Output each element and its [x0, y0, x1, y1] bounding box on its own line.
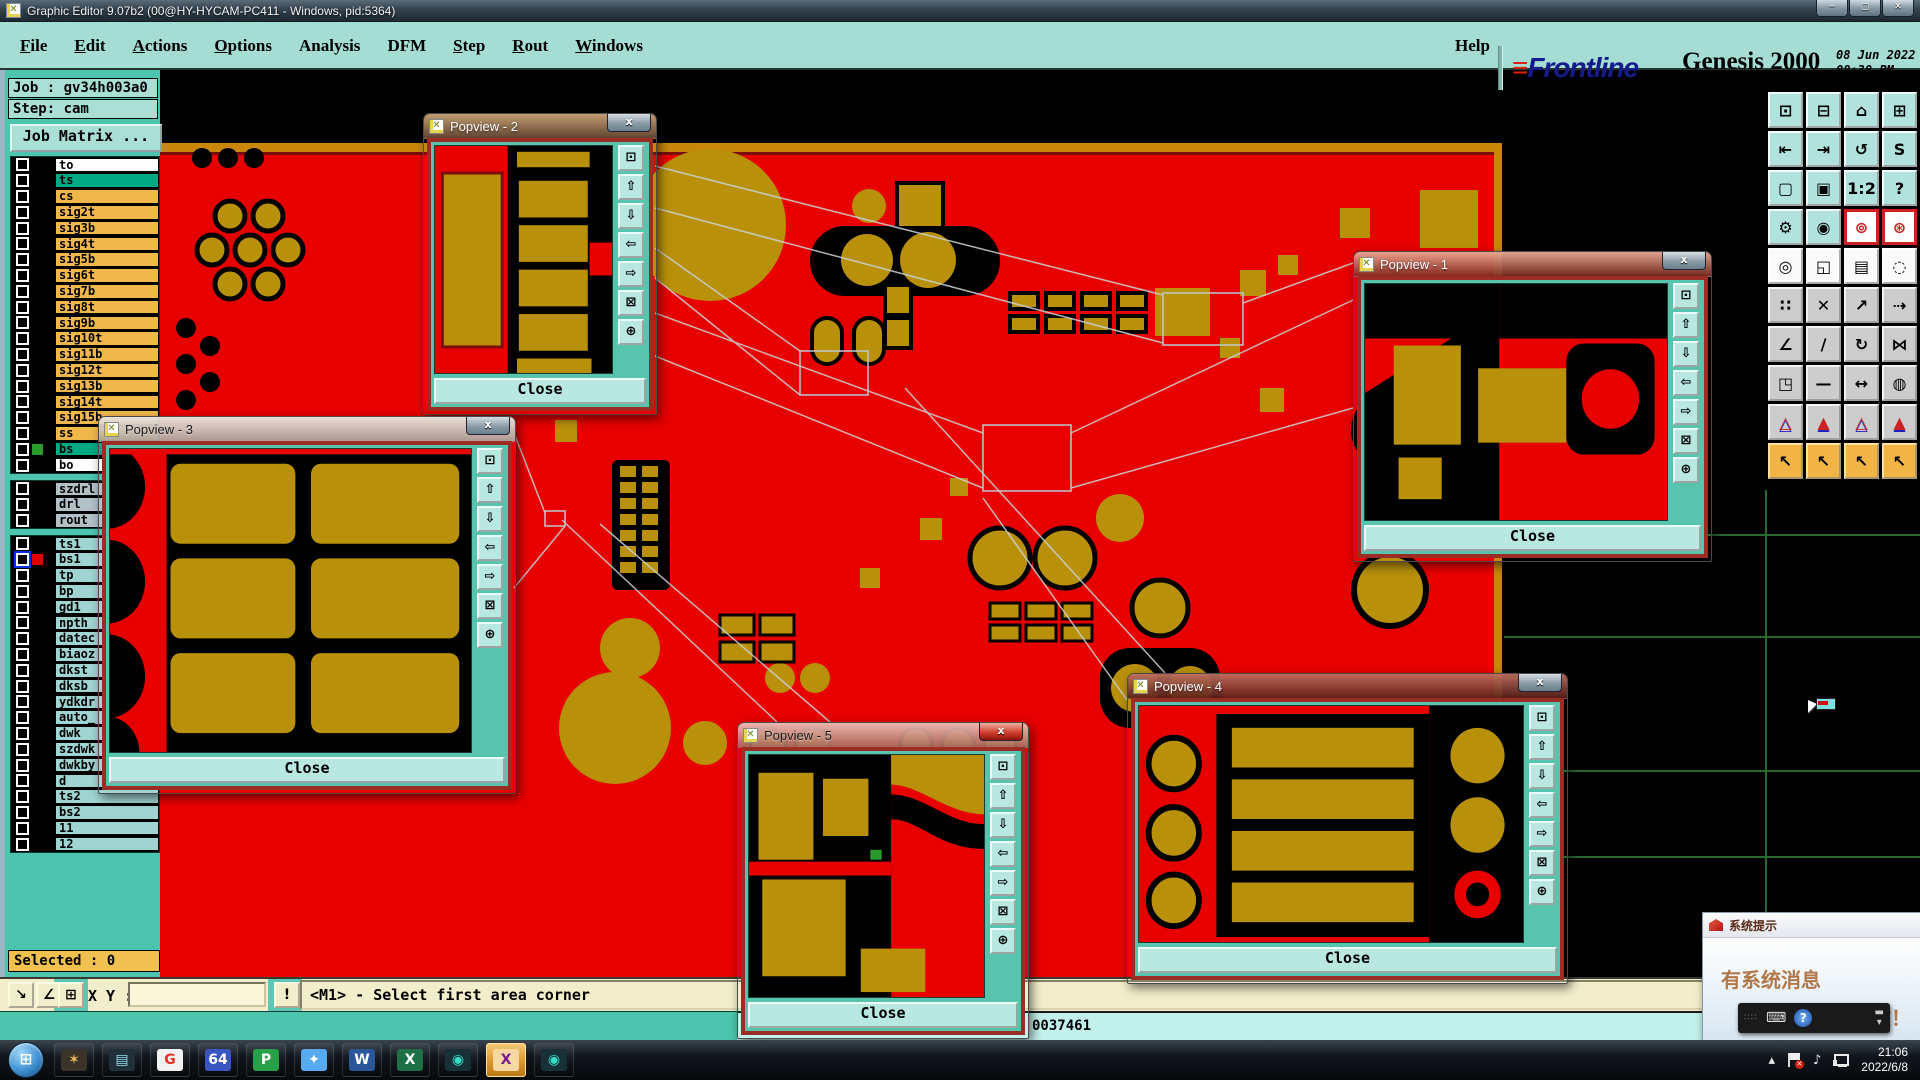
layer-checkbox[interactable] [16, 822, 29, 835]
menu-divider [1498, 46, 1503, 90]
popview-close-x-button[interactable]: x [607, 114, 651, 132]
layer-row-12[interactable]: 12 [11, 836, 159, 852]
header-time: 08:38 PM [1836, 63, 1920, 78]
zoom-compare-icon[interactable]: ◱ [1806, 248, 1841, 284]
window-titlebar: ✕ Graphic Editor 9.07b2 (00@HY-HYCAM-PC4… [0, 0, 1920, 22]
popview-app-icon: ✕ [104, 422, 119, 437]
popview-canvas[interactable] [434, 145, 613, 374]
genesis-2-app-icon-glyph: ◉ [541, 1049, 567, 1071]
menu-list: FileEditActionsOptionsAnalysisDFMStepRou… [20, 22, 643, 70]
copy-pad-icon[interactable]: ◳ [1768, 365, 1803, 401]
word-app-icon-glyph: W [349, 1049, 375, 1071]
popview-pan-down-icon[interactable]: ⇩ [618, 203, 644, 229]
popview-3-window[interactable]: ✕ Popview - 3 x ⊡⇧⇩⇦⇨⊠⊕ [98, 416, 516, 794]
notification-header: 系统提示 [1703, 913, 1920, 938]
goldwave-app-icon-glyph: G [157, 1049, 183, 1071]
popview-zoom-out-icon[interactable]: ⊕ [477, 622, 503, 648]
layer-checkbox[interactable] [16, 743, 29, 756]
layer-checkbox[interactable] [16, 269, 29, 282]
popview-pan-up-icon[interactable]: ⇧ [1529, 734, 1555, 760]
header-date: 08 Jun 2022 [1836, 48, 1920, 63]
floppy-save-app-icon-glyph: 64 [205, 1049, 231, 1071]
layer-color-swatch [32, 554, 43, 565]
popview-2-window[interactable]: ✕ Popview - 2 x ⊡⇧⇩⇦⇨⊠⊕ [423, 113, 657, 415]
bottom-teal-strip [0, 1011, 737, 1041]
layer-row-sig12t[interactable]: sig12t [11, 362, 159, 378]
layer-row-ts[interactable]: ts [11, 173, 159, 189]
popview-close-button[interactable]: Close [109, 757, 505, 783]
layer-label: ts [55, 173, 159, 188]
popview-side-toolbar: ⊡⇧⇩⇦⇨⊠⊕ [985, 754, 1018, 998]
popview-close-button[interactable]: Close [1138, 947, 1557, 973]
select-cursor-icon[interactable]: ↖ [1768, 443, 1803, 479]
layer-checkbox[interactable] [16, 395, 29, 408]
layer-checkbox[interactable] [16, 727, 29, 740]
popview-pan-left-icon[interactable]: ⇦ [1529, 792, 1555, 818]
layer-label: sig11b [55, 347, 159, 362]
popview-title: Popview - 1 [1380, 257, 1448, 272]
layer-row-sig4t[interactable]: sig4t [11, 236, 159, 252]
popview-pan-up-icon[interactable]: ⇧ [990, 783, 1016, 809]
zoom-ratio-icon[interactable]: 1:2 [1844, 170, 1879, 206]
xy-label: X Y : [88, 987, 133, 1005]
menu-bar: FileEditActionsOptionsAnalysisDFMStepRou… [0, 22, 1920, 70]
popview-close-x-button[interactable]: x [466, 417, 510, 435]
job-matrix-button[interactable]: Job Matrix ... [10, 124, 162, 152]
layer-label: bs2 [55, 805, 159, 820]
maximize-button[interactable]: ▢ [1849, 0, 1881, 17]
mirror-horizontal-icon[interactable]: ⋈ [1882, 326, 1917, 362]
notepad-app-icon-glyph: ▤ [109, 1049, 135, 1071]
clipboard-view-icon[interactable]: ⊡ [1768, 92, 1803, 128]
layer-label: sig2t [55, 205, 159, 220]
popview-detach-window-icon[interactable]: ⊡ [1529, 705, 1555, 731]
highlight-nets-b-icon[interactable]: ⊛ [1882, 209, 1917, 245]
popview-zoom-in-icon[interactable]: ⊠ [990, 899, 1016, 925]
mirror-diagonal-icon[interactable]: ∕ [1806, 326, 1841, 362]
layer-checkbox[interactable] [16, 285, 29, 298]
popview-pan-right-icon[interactable]: ⇨ [1673, 399, 1699, 425]
notification-title: 系统提示 [1729, 917, 1777, 934]
popview-5-window[interactable]: ✕ Popview - 5 x ⊡⇧⇩⇦⇨⊠⊕ [737, 722, 1029, 1039]
layer-row-sig14t[interactable]: sig14t [11, 394, 159, 410]
popview-pan-down-icon[interactable]: ⇩ [1673, 341, 1699, 367]
layer-label: sig9b [55, 316, 159, 331]
layer-label: sig14t [55, 395, 159, 410]
layer-label: 11 [55, 821, 159, 836]
layer-checkbox[interactable] [16, 585, 29, 598]
arc-mode-3-icon[interactable]: △ [1844, 404, 1879, 440]
popview-close-button[interactable]: Close [748, 1002, 1018, 1028]
measure-distance-icon[interactable]: ↔ [1844, 365, 1879, 401]
layer-checkbox[interactable] [16, 695, 29, 708]
popview-side-toolbar: ⊡⇧⇩⇦⇨⊠⊕ [613, 145, 646, 374]
stretch-line-icon[interactable]: — [1806, 365, 1841, 401]
layer-row-sig8t[interactable]: sig8t [11, 299, 159, 315]
popview-title: Popview - 4 [1154, 679, 1222, 694]
ime-minimize-icon[interactable]: ▬▾ [1875, 1008, 1884, 1028]
layer-checkbox[interactable] [16, 222, 29, 235]
delete-object-icon[interactable]: ✕ [1806, 287, 1841, 323]
popview-close-button[interactable]: Close [1364, 525, 1701, 551]
layer-label: sig12t [55, 363, 159, 378]
layer-checkbox[interactable] [16, 569, 29, 582]
layer-row-sig7b[interactable]: sig7b [11, 283, 159, 299]
grid-toggle-icon[interactable]: ⊞ [58, 982, 84, 1008]
popview-zoom-out-icon[interactable]: ⊕ [618, 319, 644, 345]
popview-app-icon: ✕ [1359, 257, 1374, 272]
layer-checkbox[interactable] [16, 482, 29, 495]
popview-3-titlebar[interactable]: ✕ Popview - 3 x [99, 417, 515, 442]
layer-checkbox[interactable] [16, 380, 29, 393]
product-name: Genesis 2000 [1682, 48, 1820, 76]
popview-pan-up-icon[interactable]: ⇧ [1673, 312, 1699, 338]
popview-side-toolbar: ⊡⇧⇩⇦⇨⊠⊕ [472, 448, 505, 753]
layer-checkbox[interactable] [16, 253, 29, 266]
notepad-app-icon[interactable]: ▤ [102, 1043, 142, 1077]
popview-close-x-button[interactable]: x [979, 723, 1023, 741]
menu-options[interactable]: Options [214, 36, 272, 56]
job-name-box: Job : gv34h003a0 [8, 78, 158, 98]
popview-pan-down-icon[interactable]: ⇩ [1529, 763, 1555, 789]
volume-icon[interactable]: ♪ [1813, 1053, 1821, 1068]
arc-mode-4-icon[interactable]: ▲ [1882, 404, 1917, 440]
pdf-app-icon[interactable]: P [246, 1043, 286, 1077]
layer-row-to[interactable]: to [11, 157, 159, 173]
genesis-app-icon-glyph: ◉ [445, 1049, 471, 1071]
floppy-save-app-icon[interactable]: 64 [198, 1043, 238, 1077]
popview-pan-up-icon[interactable]: ⇧ [618, 174, 644, 200]
layer-checkbox[interactable] [16, 838, 29, 851]
popview-zoom-out-icon[interactable]: ⊕ [990, 928, 1016, 954]
layer-checkbox[interactable] [16, 648, 29, 661]
layer-checkbox[interactable] [16, 806, 29, 819]
net-endpoints-icon[interactable]: ∷ [1768, 287, 1803, 323]
notification-line1: 有系统消息 [1721, 964, 1821, 993]
layer-checkbox[interactable] [16, 190, 29, 203]
minimize-button[interactable]: ─ [1816, 0, 1848, 17]
swap-shapes-icon[interactable]: ◍ [1882, 365, 1917, 401]
popview-canvas[interactable] [748, 754, 985, 998]
app-icon: ✕ [6, 3, 21, 18]
layer-label: sig3b [55, 221, 159, 236]
layer-checkbox[interactable] [16, 411, 29, 424]
layer-label: sig7b [55, 284, 159, 299]
action-center-flag-icon[interactable]: ✕ [1787, 1053, 1801, 1067]
ruler-measure-icon[interactable]: ▤ [1844, 248, 1879, 284]
shell-app-icon[interactable]: ✶ [54, 1043, 94, 1077]
layer-checkbox[interactable] [16, 316, 29, 329]
popview-1-window[interactable]: ✕ Popview - 1 x ⊡⇧⇩⇦⇨⊠⊕ Close [1353, 251, 1712, 562]
layer-label: sig4t [55, 237, 159, 252]
select-circle-icon[interactable]: ◌ [1882, 248, 1917, 284]
popview-zoom-in-icon[interactable]: ⊠ [477, 593, 503, 619]
right-toolbar: ⊡⊟⌂⊞⇤⇥↺S▢▣1:2?⚙◉⊚⊛◎◱▤◌∷✕↗⇢∠∕↻⋈◳—↔◍△▲△▲↖↖… [1768, 92, 1920, 482]
popview-title: Popview - 2 [450, 119, 518, 134]
layer-row-sig3b[interactable]: sig3b [11, 220, 159, 236]
menu-help[interactable]: Help [1455, 22, 1490, 70]
popview-pan-right-icon[interactable]: ⇨ [618, 261, 644, 287]
layer-label: sig10t [55, 331, 159, 346]
layer-color-swatch [32, 444, 43, 455]
goldwave-app-icon[interactable]: G [150, 1043, 190, 1077]
popview-5-titlebar[interactable]: ✕ Popview - 5 x [738, 723, 1028, 748]
popview-zoom-in-icon[interactable]: ⊠ [618, 290, 644, 316]
pan-view-right-icon[interactable]: ⇥ [1806, 131, 1841, 167]
menu-file[interactable]: File [20, 36, 47, 56]
step-name-box: Step: cam [8, 99, 158, 119]
select-net-path-icon[interactable]: ↖ [1882, 443, 1917, 479]
genesis-2-app-icon[interactable]: ◉ [534, 1043, 574, 1077]
layer-checkbox[interactable] [16, 711, 29, 724]
mouse-cursor [1808, 698, 1838, 716]
layer-checkbox[interactable] [16, 443, 29, 456]
zoom-center-icon[interactable]: ▣ [1806, 170, 1841, 206]
layer-checkbox[interactable] [16, 680, 29, 693]
layer-checkbox[interactable] [16, 206, 29, 219]
notification-heart-icon [1709, 919, 1723, 931]
popview-zoom-in-icon[interactable]: ⊠ [1673, 428, 1699, 454]
messenger-app-icon[interactable]: ✦ [294, 1043, 334, 1077]
pdf-app-icon-glyph: P [253, 1049, 279, 1071]
layer-label: to [55, 158, 159, 173]
popview-close-x-button[interactable]: x [1662, 252, 1706, 270]
popview-4-titlebar[interactable]: ✕ Popview - 4 x [1128, 674, 1567, 699]
popview-side-toolbar: ⊡⇧⇩⇦⇨⊠⊕ [1668, 283, 1701, 521]
header-datetime: 08 Jun 2022 08:38 PM [1836, 48, 1920, 78]
layer-checkbox[interactable] [16, 158, 29, 171]
frontline-logo: ≡Frontline [1512, 52, 1638, 84]
frontline-stripes-icon: ≡ [1512, 52, 1526, 83]
popview-canvas[interactable] [1138, 705, 1524, 943]
close-button[interactable]: ✕ [1882, 0, 1914, 17]
screen-dump-icon[interactable]: ⊟ [1806, 92, 1841, 128]
layer-checkbox[interactable] [16, 790, 29, 803]
popview-pan-right-icon[interactable]: ⇨ [990, 870, 1016, 896]
layer-row-sig9b[interactable]: sig9b [11, 315, 159, 331]
layer-checkbox[interactable] [16, 237, 29, 250]
rotate-90-icon[interactable]: ↻ [1844, 326, 1879, 362]
popview-pan-left-icon[interactable]: ⇦ [618, 232, 644, 258]
excel-app-icon-glyph: X [397, 1049, 423, 1071]
layer-label: sig13b [55, 379, 159, 394]
ime-help-icon[interactable]: ? [1794, 1009, 1812, 1027]
layer-checkbox[interactable] [16, 759, 29, 772]
excel-app-icon[interactable]: X [390, 1043, 430, 1077]
menu-analysis[interactable]: Analysis [299, 36, 360, 56]
popview-app-icon: ✕ [743, 728, 758, 743]
layer-row-sig13b[interactable]: sig13b [11, 378, 159, 394]
layer-checkbox[interactable] [16, 537, 29, 550]
arc-mode-1-icon[interactable]: △ [1768, 404, 1803, 440]
genesis-app-icon[interactable]: ◉ [438, 1043, 478, 1077]
setup-tools-icon[interactable]: ⚙ [1768, 209, 1803, 245]
popview-pan-right-icon[interactable]: ⇨ [477, 564, 503, 590]
popview-detach-window-icon[interactable]: ⊡ [1673, 283, 1699, 309]
layer-checkbox[interactable] [16, 514, 29, 527]
ime-grip-icon[interactable]: ∷∷ [1744, 1014, 1758, 1023]
split-window-xy-icon[interactable]: ⊞ [1882, 92, 1917, 128]
layer-checkbox[interactable] [16, 553, 29, 566]
menu-dfm[interactable]: DFM [387, 36, 426, 56]
layer-checkbox[interactable] [16, 616, 29, 629]
layer-row-sig10t[interactable]: sig10t [11, 331, 159, 347]
layer-label: sig6t [55, 268, 159, 283]
clock-time: 21:06 [1861, 1045, 1908, 1060]
layer-checkbox[interactable] [16, 632, 29, 645]
select-frame-icon[interactable]: ↖ [1806, 443, 1841, 479]
keyboard-icon[interactable]: ⌨ [1766, 1010, 1786, 1026]
system-tray: ▴ ✕ ♪ 21:06 2022/6/8 [1768, 1045, 1920, 1075]
popview-pan-up-icon[interactable]: ⇧ [477, 477, 503, 503]
home-view-icon[interactable]: ⌂ [1844, 92, 1879, 128]
popview-zoom-out-icon[interactable]: ⊕ [1673, 457, 1699, 483]
popview-2-titlebar[interactable]: ✕ Popview - 2 x [424, 114, 656, 139]
taskbar-app-icons: ✶▤G64P✦WX◉X◉ [54, 1043, 582, 1077]
popview-close-x-button[interactable]: x [1518, 674, 1562, 692]
start-button[interactable]: ⊞ [8, 1042, 44, 1078]
windows-taskbar: ⊞ ✶▤G64P✦WX◉X◉ ▴ ✕ ♪ 21:06 2022/6/8 [0, 1040, 1920, 1080]
popview-pan-down-icon[interactable]: ⇩ [990, 812, 1016, 838]
popview-canvas[interactable] [1364, 283, 1668, 521]
popview-title: Popview - 3 [125, 422, 193, 437]
word-app-icon[interactable]: W [342, 1043, 382, 1077]
layer-checkbox[interactable] [16, 664, 29, 677]
layer-checkbox[interactable] [16, 774, 29, 787]
layer-label: 12 [55, 837, 159, 852]
layer-checkbox[interactable] [16, 459, 29, 472]
taskbar-clock[interactable]: 21:06 2022/6/8 [1861, 1045, 1908, 1075]
layer-row-11[interactable]: 11 [11, 820, 159, 836]
layer-checkbox[interactable] [16, 364, 29, 377]
s-shape-select-icon[interactable]: S [1882, 131, 1917, 167]
clock-date: 2022/6/8 [1861, 1060, 1908, 1075]
layer-checkbox[interactable] [16, 301, 29, 314]
select-polygon-icon[interactable]: ↖ [1844, 443, 1879, 479]
layer-row-cs[interactable]: cs [11, 189, 159, 205]
popview-pan-down-icon[interactable]: ⇩ [477, 506, 503, 532]
selected-count-box: Selected : 0 [8, 950, 160, 972]
layer-checkbox[interactable] [16, 348, 29, 361]
layer-row-sig11b[interactable]: sig11b [11, 347, 159, 363]
ime-language-bar[interactable]: ∷∷ ⌨ ? ▬▾ [1738, 1003, 1890, 1033]
menu-step[interactable]: Step [453, 36, 485, 56]
product-edition: Graphic Editor [1724, 77, 1812, 93]
move-point-icon[interactable]: ⇢ [1882, 287, 1917, 323]
messenger-app-icon-glyph: ✦ [301, 1049, 327, 1071]
layer-checkbox[interactable] [16, 332, 29, 345]
window-title: Graphic Editor 9.07b2 (00@HY-HYCAM-PC411… [27, 4, 395, 18]
popview-side-toolbar: ⊡⇧⇩⇦⇨⊠⊕ [1524, 705, 1557, 943]
popview-zoom-out-icon[interactable]: ⊕ [1529, 879, 1555, 905]
popview-detach-window-icon[interactable]: ⊡ [477, 448, 503, 474]
popview-pan-right-icon[interactable]: ⇨ [1529, 821, 1555, 847]
graphic-editor-app-icon-glyph: X [493, 1049, 519, 1071]
alert-button[interactable]: ! [274, 982, 300, 1008]
help-mode-icon[interactable]: ? [1882, 170, 1917, 206]
popview-detach-window-icon[interactable]: ⊡ [618, 145, 644, 171]
pan-view-left-icon[interactable]: ⇤ [1768, 131, 1803, 167]
popview-app-icon: ✕ [429, 119, 444, 134]
layer-label: sig5b [55, 252, 159, 267]
arc-mode-2-icon[interactable]: ▲ [1806, 404, 1841, 440]
highlight-nets-a-icon[interactable]: ⊚ [1844, 209, 1879, 245]
popview-zoom-in-icon[interactable]: ⊠ [1529, 850, 1555, 876]
shell-app-icon-glyph: ✶ [61, 1049, 87, 1071]
xy-coordinate-input[interactable] [128, 982, 266, 1007]
move-origin-icon[interactable]: ↗ [1844, 287, 1879, 323]
layer-row-sig5b[interactable]: sig5b [11, 252, 159, 268]
copy-select-icon[interactable]: ◎ [1768, 248, 1803, 284]
layer-label: cs [55, 189, 159, 204]
layer-checkbox[interactable] [16, 427, 29, 440]
popview-close-button[interactable]: Close [434, 378, 646, 404]
layer-row-sig2t[interactable]: sig2t [11, 204, 159, 220]
coordinate-counter: 0037461 [1032, 1018, 1091, 1034]
measure-diagonal-icon[interactable]: ↘ [8, 982, 34, 1008]
popview-canvas[interactable] [109, 448, 472, 753]
popview-1-titlebar[interactable]: ✕ Popview - 1 x [1354, 252, 1711, 277]
zoom-out-box-icon[interactable]: ▢ [1768, 170, 1803, 206]
previous-view-icon[interactable]: ↺ [1844, 131, 1879, 167]
menu-actions[interactable]: Actions [133, 36, 188, 56]
layer-label: sig8t [55, 300, 159, 315]
popview-4-window[interactable]: ✕ Popview - 4 x [1127, 673, 1568, 984]
prompt-message: <M1> - Select first area corner [300, 980, 1918, 1010]
net-trace-icon[interactable]: ◉ [1806, 209, 1841, 245]
popview-title: Popview - 5 [764, 728, 832, 743]
layer-row-bs2[interactable]: bs2 [11, 805, 159, 821]
graphic-editor-app-icon[interactable]: X [486, 1043, 526, 1077]
layer-checkbox[interactable] [16, 601, 29, 614]
menu-rout[interactable]: Rout [512, 36, 548, 56]
popview-pan-left-icon[interactable]: ⇦ [477, 535, 503, 561]
layer-checkbox[interactable] [16, 498, 29, 511]
menu-edit[interactable]: Edit [74, 36, 105, 56]
network-icon[interactable] [1833, 1054, 1849, 1067]
popview-pan-left-icon[interactable]: ⇦ [990, 841, 1016, 867]
layer-checkbox[interactable] [16, 174, 29, 187]
tray-expand-icon[interactable]: ▴ [1768, 1053, 1775, 1068]
popview-app-icon: ✕ [1133, 679, 1148, 694]
popview-detach-window-icon[interactable]: ⊡ [990, 754, 1016, 780]
layer-row-sig6t[interactable]: sig6t [11, 268, 159, 284]
rotate-angle-icon[interactable]: ∠ [1768, 326, 1803, 362]
menu-windows[interactable]: Windows [575, 36, 643, 56]
popview-pan-left-icon[interactable]: ⇦ [1673, 370, 1699, 396]
